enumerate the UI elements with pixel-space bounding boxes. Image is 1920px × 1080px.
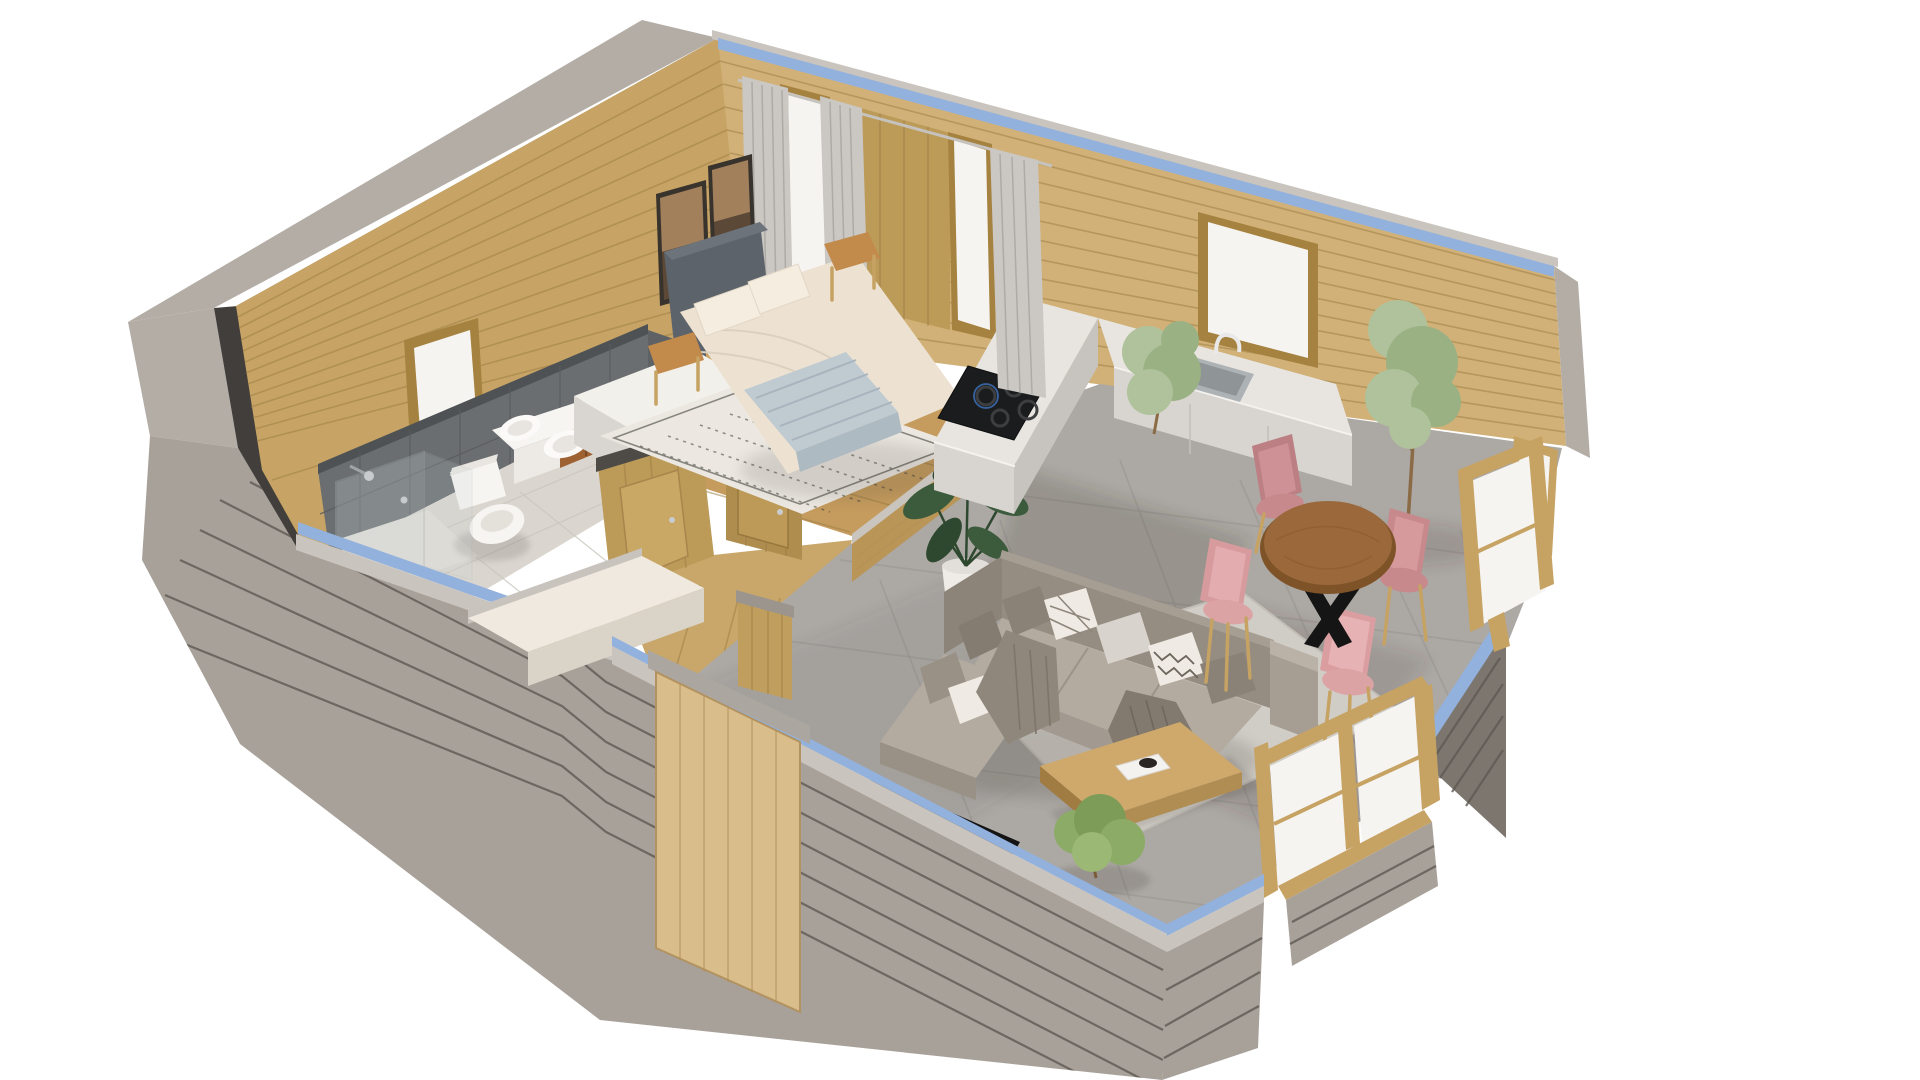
cabin-floorplan-render: Isometric 3D cutaway floor plan render o… — [0, 0, 1920, 1080]
shrub-foliage — [1072, 832, 1112, 872]
shower-mixer-icon — [401, 497, 408, 504]
kitchen-plant-foliage — [1127, 369, 1173, 415]
shower-glass-return — [424, 452, 472, 580]
tree-foliage — [1389, 407, 1431, 449]
door-handle-icon — [669, 517, 675, 523]
bowl — [1139, 758, 1157, 768]
shower-head-icon — [364, 471, 374, 481]
art-canvas-2-top — [712, 160, 750, 222]
curtain-right — [990, 148, 1046, 398]
door-handle-2-icon — [777, 509, 783, 515]
doorway-glass-2 — [954, 140, 990, 330]
floorplan-canvas: Isometric 3D cutaway floor plan render o… — [0, 0, 1920, 1080]
kitchen-plant-foliage — [1161, 321, 1199, 359]
table-top — [1264, 501, 1392, 585]
